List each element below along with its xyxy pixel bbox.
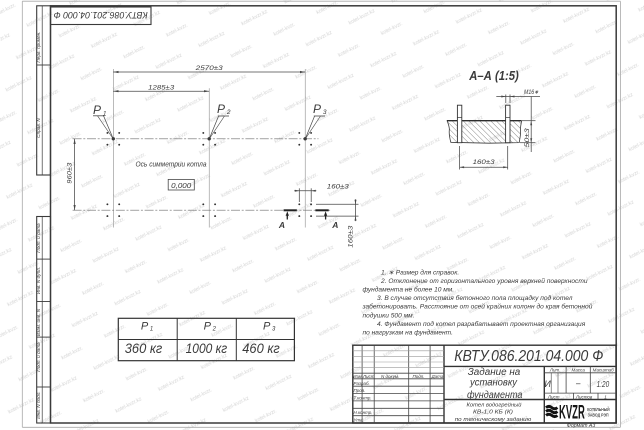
svg-text:установку: установку [469,378,518,389]
svg-text:Инв. N подл.: Инв. N подл. [36,391,41,418]
svg-text:2570±3: 2570±3 [194,65,223,72]
svg-text:Лист: Лист [547,394,560,399]
svg-text:3. В случае отсутствия бетонн: 3. В случае отсутствия бетонного пола пл… [377,294,573,302]
svg-text:Разраб.: Разраб. [354,381,370,386]
svg-text:КОТЕЛЬНЫЙ: КОТЕЛЬНЫЙ [587,407,609,412]
svg-text:Масштаб: Масштаб [593,368,614,373]
svg-text:160±3: 160±3 [327,184,350,191]
svg-text:Котел водогрейный: Котел водогрейный [467,401,522,408]
svg-text:И: И [544,379,551,389]
svg-text:Т.контр.: Т.контр. [354,396,372,401]
svg-text:забетонировать. Расстояние от: забетонировать. Расстояние от осей крайн… [362,303,593,311]
svg-text:ЗАВОД РЭП: ЗАВОД РЭП [588,413,609,418]
svg-text:Взам. инв. N: Взам. инв. N [36,308,41,336]
svg-text:Справ. N: Справ. N [36,118,41,138]
svg-text:Н.контр.: Н.контр. [354,410,373,415]
svg-text:КВ-1,0 КБ (К): КВ-1,0 КБ (К) [473,410,513,416]
svg-text:0,000: 0,000 [171,181,192,190]
svg-text:Подп. и дата: Подп. и дата [36,223,41,253]
svg-text:фундамента: фундамента [467,389,523,401]
svg-text:1. ∗ Размер для справок.: 1. ∗ Размер для справок. [381,268,459,276]
svg-text:А: А [331,220,338,230]
svg-text:KVZR: KVZR [559,402,585,423]
svg-text:–: – [575,379,581,388]
svg-text:4. Фундамент под котел разраб: 4. Фундамент под котел разрабатывает про… [377,320,586,328]
svg-text:Формат А3: Формат А3 [567,423,596,429]
svg-text:Ось симметрии котла: Ось симметрии котла [136,159,207,168]
svg-text:Инв. N дубл.: Инв. N дубл. [36,267,41,294]
svg-text:подушки 500 мм.: подушки 500 мм. [363,311,415,319]
svg-text:Утв.: Утв. [354,418,364,423]
svg-text:2. Отклонение от горизонтальн: 2. Отклонение от горизонтального уровня … [380,277,588,285]
svg-text:Масса: Масса [572,368,586,373]
svg-text:Подп.: Подп. [413,374,425,379]
svg-text:А: А [278,220,285,230]
svg-text:360 кг: 360 кг [125,341,163,356]
svg-text:Лит.: Лит. [549,368,561,373]
svg-text:Дата: Дата [431,374,444,379]
svg-text:по нагрузкам на фундамент.: по нагрузкам на фундамент. [363,329,454,337]
svg-text:N докум.: N докум. [381,374,399,379]
svg-text:Задание на: Задание на [468,367,521,378]
svg-text:А–А (1:5): А–А (1:5) [468,69,518,83]
svg-text:1:20: 1:20 [597,380,610,389]
svg-text:960±3: 960±3 [67,162,74,183]
svg-text:160±3: 160±3 [473,160,496,166]
svg-text:КВТУ.086.201.04.000 Ф: КВТУ.086.201.04.000 Ф [53,10,148,21]
svg-text:Листов: Листов [575,394,593,399]
svg-text:по техническому заданию: по техническому заданию [455,417,532,423]
svg-text:160±3: 160±3 [347,225,354,248]
svg-text:М16∗: М16∗ [524,89,539,96]
svg-text:460 кг: 460 кг [242,341,280,356]
svg-text:50±3: 50±3 [524,128,531,148]
svg-text:Подп. и дата: Подп. и дата [36,342,41,372]
svg-text:Изм.Лист: Изм.Лист [353,374,374,379]
svg-text:1000 кг: 1000 кг [186,341,228,356]
svg-text:Перв. примен.: Перв. примен. [36,31,41,62]
svg-text:фундамента не более 10 мм.: фундамента не более 10 мм. [363,286,455,294]
svg-text:1285±3: 1285±3 [148,84,174,91]
svg-text:Пров.: Пров. [354,388,366,393]
svg-text:КВТУ.086.201.04.000 Ф: КВТУ.086.201.04.000 Ф [454,348,603,365]
